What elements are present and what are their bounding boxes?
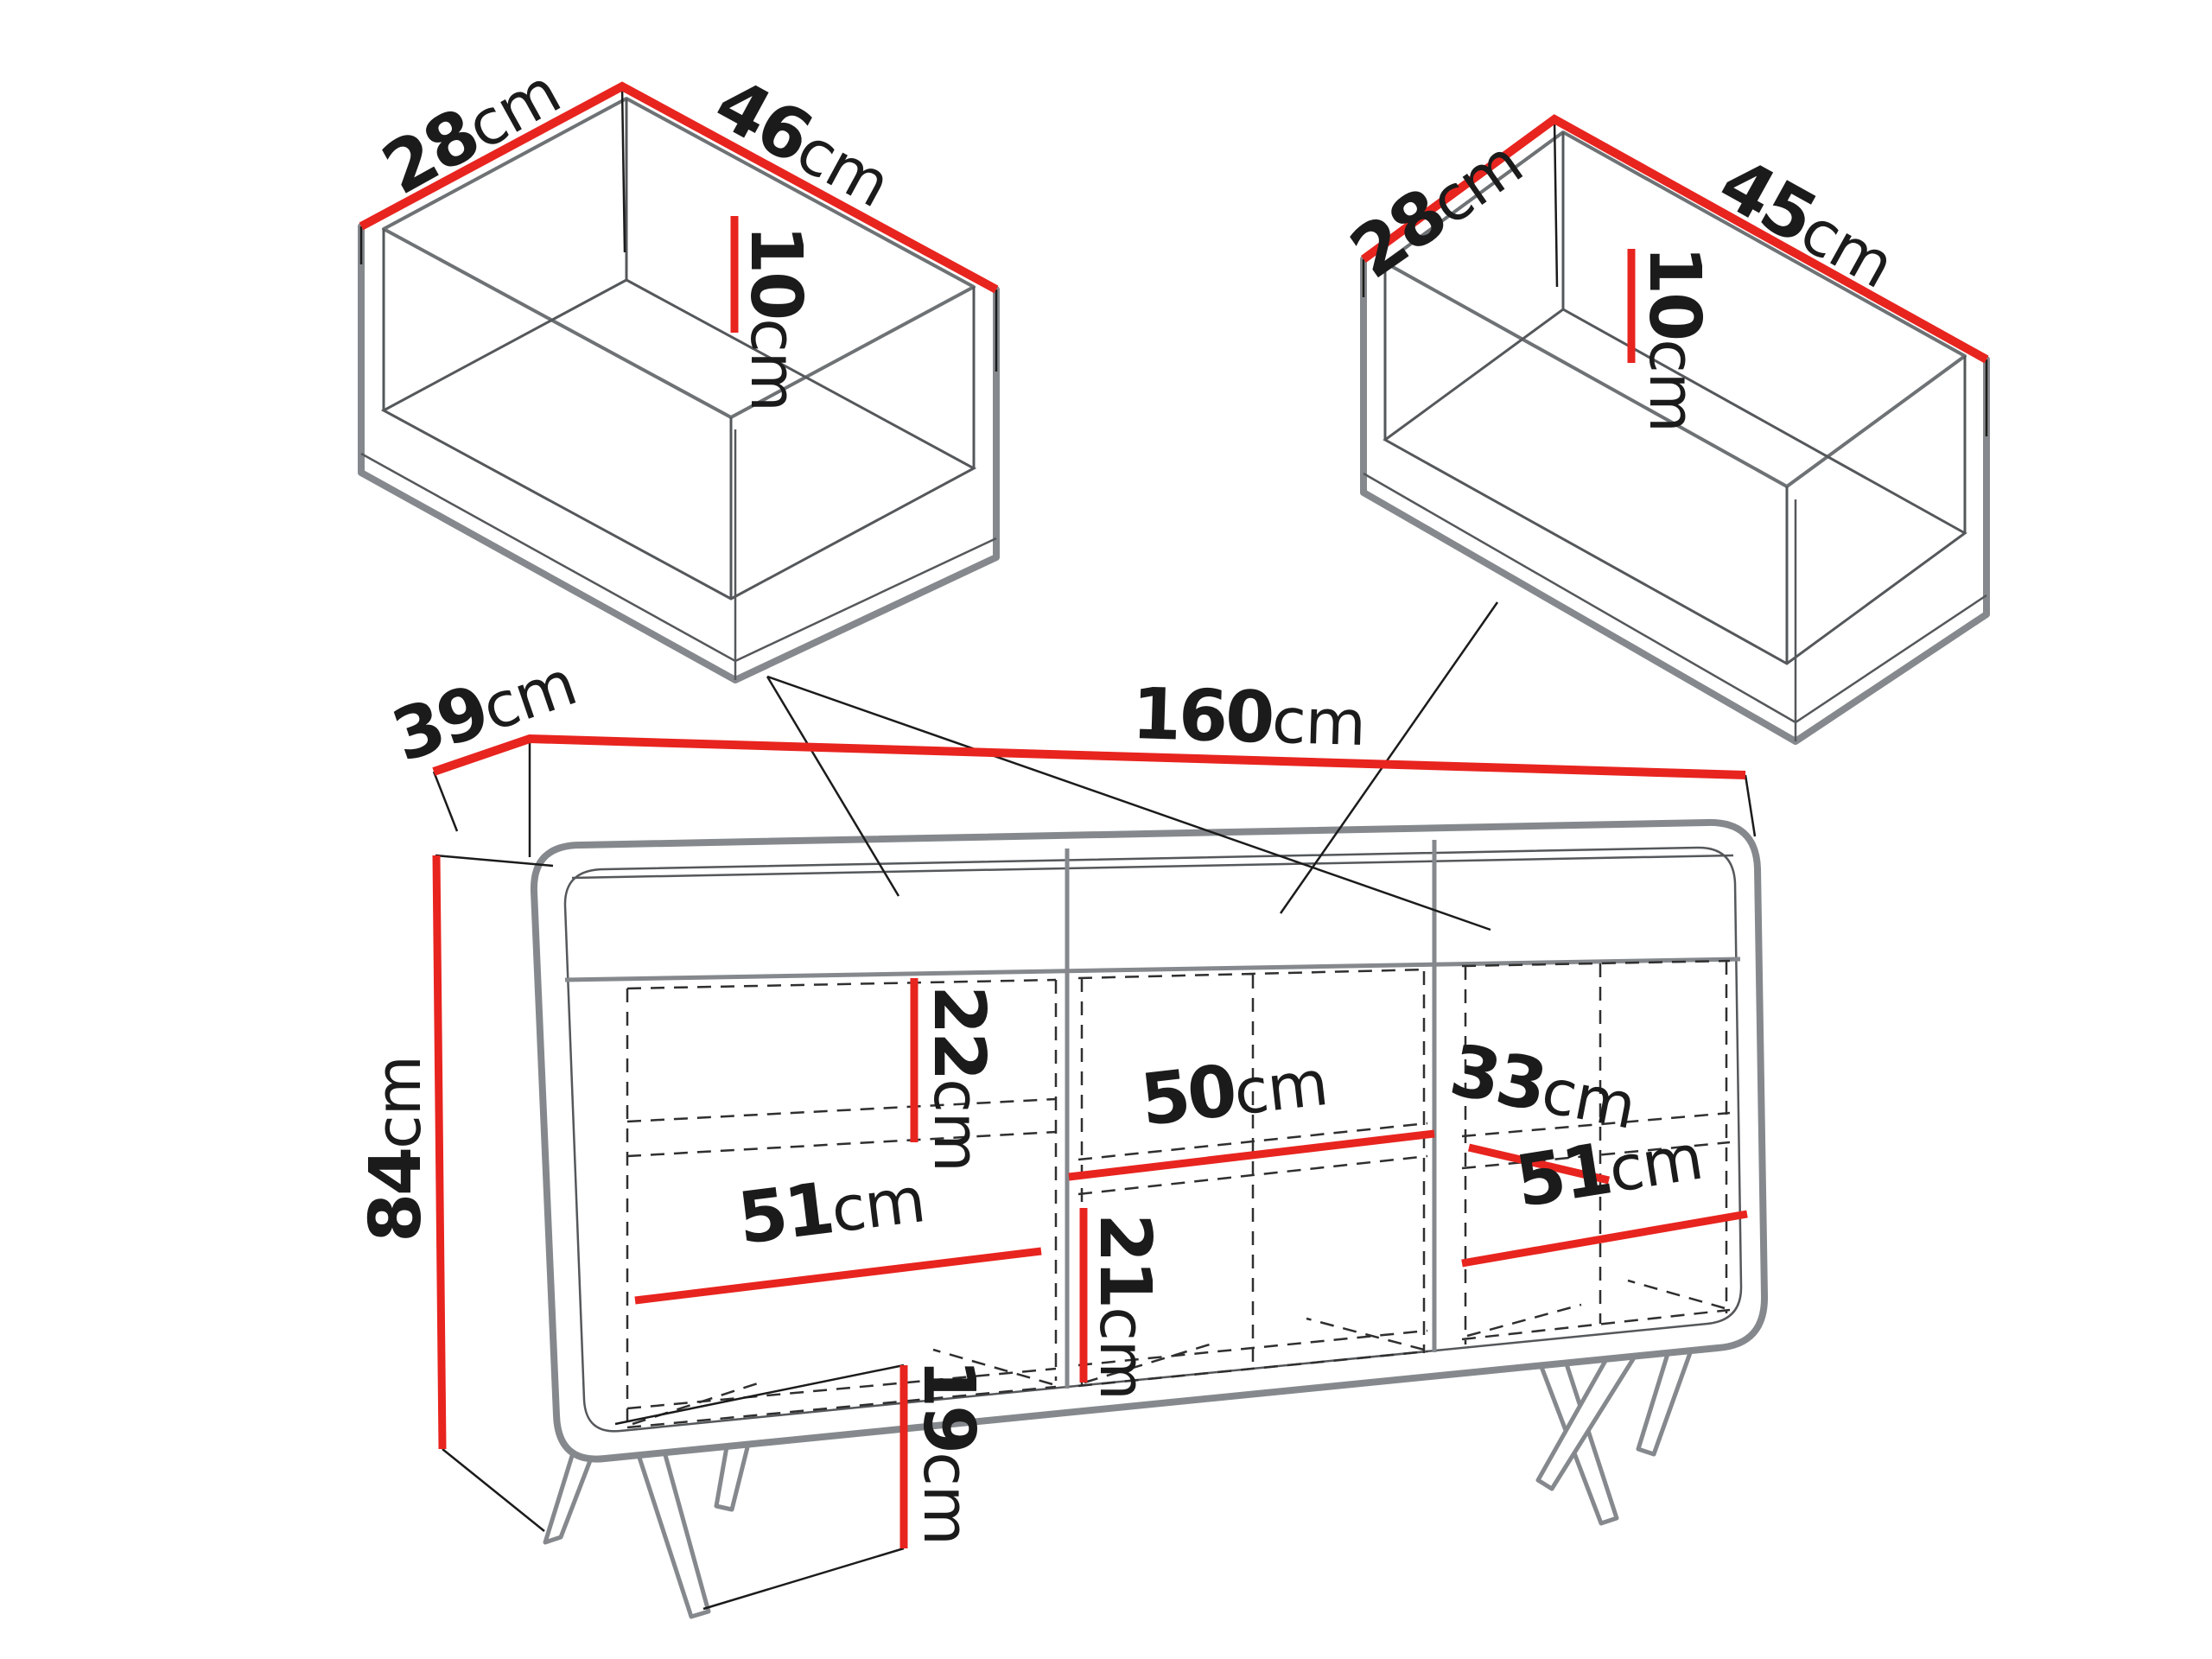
- label-middle-bottom-opening-height: 21cm: [1084, 1213, 1166, 1400]
- label-leg-height: 19cm: [907, 1358, 989, 1545]
- label-cabinet-height: 84cm: [355, 1056, 437, 1243]
- furniture-dimension-diagram: 28cm 46cm 10cm 28cm 45cm 10cm 39cm 160cm…: [0, 0, 2212, 1659]
- dim-line-cabinet-height: [436, 855, 442, 1449]
- label-drawer-left-height: 10cm: [734, 225, 817, 411]
- label-cabinet-width: 160cm: [1131, 673, 1367, 762]
- diagram-canvas: 28cm 46cm 10cm 28cm 45cm 10cm 39cm 160cm…: [0, 0, 2212, 1659]
- dim-line-cabinet-top: [434, 739, 1745, 775]
- label-drawer-right-height: 10cm: [1633, 245, 1715, 432]
- label-left-top-opening-height: 22cm: [918, 985, 1000, 1172]
